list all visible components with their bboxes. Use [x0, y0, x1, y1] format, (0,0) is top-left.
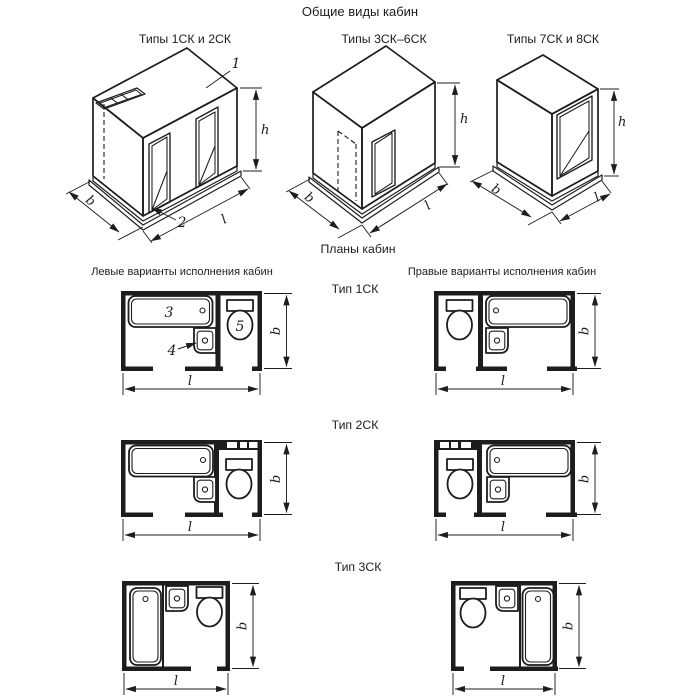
bathtub-icon	[487, 446, 571, 477]
view2-label: Типы 3СК–6СК	[341, 32, 427, 46]
roof-face	[313, 46, 435, 128]
dimension-b: b	[577, 443, 601, 515]
dim-label-h: h	[460, 112, 468, 127]
right-variants-header: Правые варианты исполнения кабин	[408, 266, 596, 278]
front-face	[362, 82, 435, 209]
type-2sk-label: Тип 2СК	[332, 418, 380, 432]
plan-type1sk-left: 3 4 5 b l	[121, 291, 292, 395]
dimension-l: l	[453, 673, 555, 695]
dim-label-b: b	[578, 327, 593, 335]
left-face	[93, 98, 143, 216]
dim-label-b: b	[562, 622, 577, 630]
base-slab-upper	[497, 162, 598, 201]
view1-label: Типы 1СК и 2СК	[139, 32, 232, 46]
view3-label: Типы 7СК и 8СК	[507, 32, 600, 46]
dim-label-l: l	[174, 674, 178, 689]
dimension-b: b	[559, 584, 586, 669]
partition-wall	[478, 291, 483, 371]
drawing-page: Общие виды кабин Типы 1СК и 2СК Типы 3СК…	[0, 0, 700, 700]
dimension-b: b	[264, 294, 292, 369]
toilet-icon	[460, 588, 486, 628]
iso-view-types-7sk-8sk: h b l	[470, 55, 626, 225]
type-3sk-label: Тип 3СК	[335, 560, 383, 574]
dimension-b: b	[264, 443, 292, 515]
bathtub-icon	[129, 446, 213, 477]
partition-wall	[519, 585, 521, 667]
dim-label-l: l	[219, 212, 230, 227]
toilet-icon	[226, 459, 252, 499]
dim-label-l: l	[188, 374, 192, 389]
washbasin-icon	[487, 477, 509, 502]
dim-label-b: b	[82, 193, 98, 210]
roof-face	[497, 55, 598, 114]
vent-grille-icon	[219, 440, 260, 450]
door-opening	[372, 130, 395, 197]
plan-type3sk-left: b l	[122, 581, 259, 695]
base-slab-upper	[313, 163, 435, 214]
hidden-door-outline	[338, 131, 356, 201]
page-title: Общие виды кабин	[302, 4, 418, 19]
toilet-icon	[447, 459, 473, 499]
plan-type1sk-right: b l	[434, 291, 601, 395]
dimension-l: l	[436, 519, 573, 541]
iso-view-types-1sk-2sk: h b l 1 2	[66, 48, 269, 243]
dim-label-l: l	[501, 520, 505, 535]
callout-4: 4	[167, 343, 177, 359]
partition-wall	[477, 440, 482, 517]
partition-wall	[162, 585, 164, 667]
toilet-icon	[447, 300, 473, 340]
iso-view-types-3sk-6sk: h b l	[286, 46, 468, 238]
bathtub-icon	[523, 588, 554, 665]
dimension-h-view3: h	[600, 89, 626, 176]
washbasin-icon	[486, 328, 508, 353]
washbasin-icon	[496, 586, 518, 611]
dimension-b: b	[232, 584, 259, 669]
dim-label-l: l	[501, 374, 505, 389]
callout-5: 5	[236, 319, 245, 335]
technical-drawing-canvas: Общие виды кабин Типы 1СК и 2СК Типы 3СК…	[0, 0, 700, 700]
dim-label-b: b	[301, 190, 317, 207]
bathtub-icon	[130, 588, 161, 665]
door-opening-left	[149, 133, 170, 213]
dim-label-b: b	[269, 327, 284, 335]
dimension-l: l	[123, 519, 260, 541]
type-1sk-label: Тип 1СК	[332, 282, 380, 296]
dimension-b: b	[577, 294, 601, 369]
dimension-l: l	[124, 673, 228, 695]
base-slab-lower	[309, 167, 439, 223]
dimension-l: l	[436, 373, 573, 395]
plan-type3sk-right: b l	[451, 581, 586, 695]
vent-grille-icon	[438, 440, 479, 450]
dimension-h-view2: h	[437, 83, 468, 167]
left-variants-header: Левые варианты исполнения кабин	[91, 266, 273, 278]
dimension-h-view1: h	[240, 88, 269, 171]
dim-label-l: l	[501, 674, 505, 689]
dim-label-l: l	[422, 199, 434, 214]
dim-label-b: b	[236, 622, 251, 630]
dimension-l: l	[123, 373, 260, 395]
toilet-icon	[197, 587, 223, 627]
washbasin-icon	[194, 477, 216, 502]
dim-label-b: b	[488, 181, 503, 198]
washbasin-icon	[166, 586, 188, 611]
dim-label-b: b	[269, 475, 284, 483]
door-opening-right	[196, 107, 218, 188]
washbasin-icon	[194, 328, 216, 353]
plans-title: Планы кабин	[320, 242, 395, 256]
callout-3: 3	[165, 305, 174, 321]
bathtub-icon	[486, 296, 570, 327]
dim-label-b: b	[578, 475, 593, 483]
dim-label-l: l	[188, 520, 192, 535]
dim-label-h: h	[618, 115, 626, 130]
dim-label-h: h	[261, 123, 269, 138]
plan-type2sk-left: b l	[121, 440, 292, 541]
plan-type2sk-right: b l	[434, 440, 601, 541]
callout-1: 1	[232, 56, 241, 72]
callout-2: 2	[177, 215, 187, 231]
